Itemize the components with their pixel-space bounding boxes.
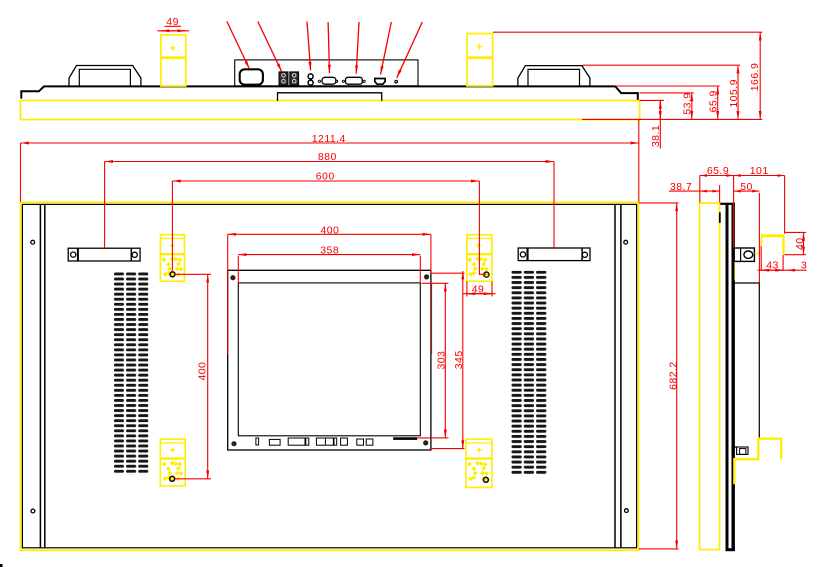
svg-text:43: 43 [766, 260, 779, 272]
svg-text:38.7: 38.7 [670, 181, 692, 193]
svg-text:105.9: 105.9 [728, 79, 740, 108]
svg-text:38.1: 38.1 [650, 125, 662, 147]
svg-text:303: 303 [435, 351, 447, 370]
svg-text:400: 400 [197, 362, 209, 381]
svg-text:40: 40 [794, 237, 806, 250]
svg-text:49: 49 [166, 16, 179, 28]
svg-text:50: 50 [740, 181, 753, 193]
svg-text:166.9: 166.9 [749, 63, 761, 92]
svg-text:65.9: 65.9 [707, 90, 719, 112]
svg-text:1211.4: 1211.4 [312, 133, 346, 145]
svg-text:345: 345 [453, 350, 465, 369]
svg-text:682.2: 682.2 [667, 361, 679, 390]
svg-text:65.9: 65.9 [707, 165, 729, 177]
svg-text:49: 49 [472, 284, 485, 296]
svg-text:880: 880 [318, 151, 337, 163]
svg-text:358: 358 [320, 245, 339, 257]
svg-text:600: 600 [316, 171, 335, 183]
svg-text:53.9: 53.9 [682, 92, 694, 114]
svg-text:400: 400 [320, 225, 339, 237]
svg-text:101: 101 [750, 165, 769, 177]
svg-text:3: 3 [801, 260, 807, 272]
